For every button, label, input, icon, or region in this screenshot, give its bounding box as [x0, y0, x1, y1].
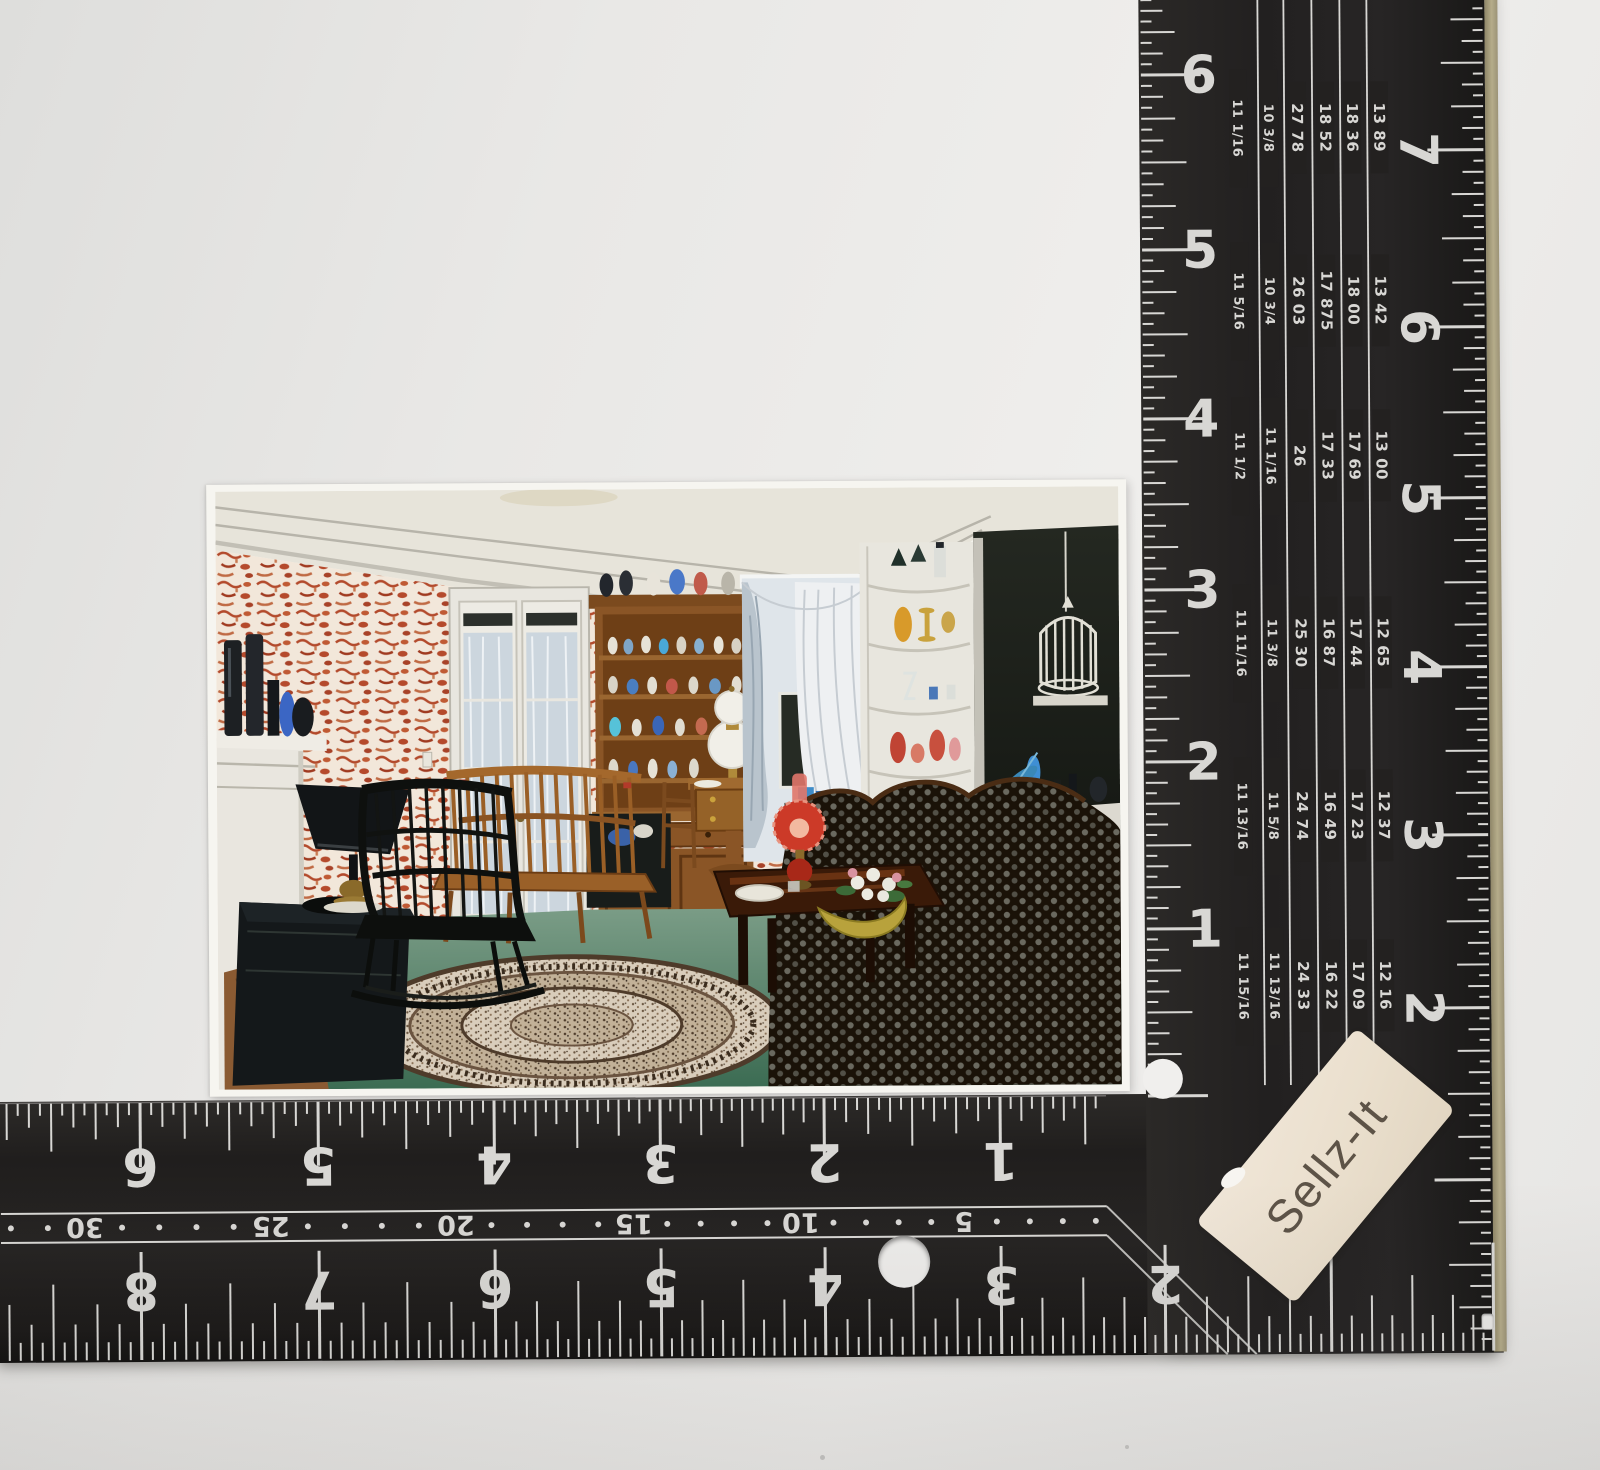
ruler-corner-notch: [1482, 1314, 1494, 1330]
dust-speck: [820, 1455, 825, 1460]
ruler-hole-middle: [878, 1236, 930, 1288]
ruler-hole-top: [1143, 1059, 1183, 1099]
dust-speck: [1125, 1445, 1129, 1449]
photo-scene: 654321302520151058765432 654321876543211…: [0, 0, 1600, 1470]
l-square-ruler: 654321302520151058765432 654321876543211…: [0, 0, 1600, 1470]
